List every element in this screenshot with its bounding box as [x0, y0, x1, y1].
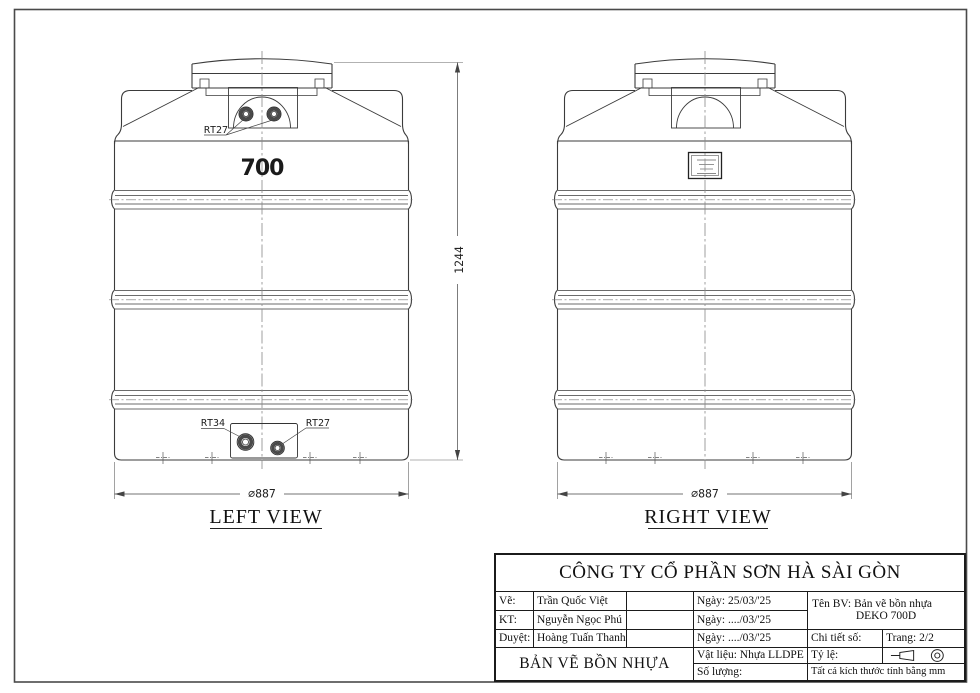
projection-symbols-cell — [883, 648, 964, 664]
scale-label: Tỷ lệ: — [808, 648, 883, 664]
drawing-sheet: RT27 700 RT34 RT27 ∅88 — [0, 0, 980, 693]
drafter-signature-cell — [627, 592, 694, 611]
approver-signature-cell — [627, 630, 694, 649]
projection-method-icon — [886, 648, 961, 663]
dimension-diameter-right: ∅887 — [558, 462, 852, 501]
drawing-name-cell: Tên BV: Bản vẽ bồn nhựa DEKO 700D — [808, 592, 964, 630]
approver-name: Hoàng Tuấn Thanh — [534, 630, 627, 649]
quantity-label: Số lượng: — [694, 664, 808, 680]
dimension-height: 1244 — [334, 63, 466, 461]
diameter-dim-left: ∅887 — [248, 487, 276, 501]
rt34-text: RT34 — [201, 418, 225, 429]
material-label: Vật liệu: Nhựa LLDPE — [694, 648, 808, 664]
drafter-role: Vẽ: — [496, 592, 534, 611]
approver-date: Ngày: ..../03/'25 — [694, 630, 808, 649]
left-view-title: LEFT VIEW — [209, 506, 322, 528]
checker-signature-cell — [627, 611, 694, 630]
right-view-caption: RIGHT VIEW — [644, 506, 772, 529]
units-note: Tất cả kích thước tính bằng mm — [808, 664, 964, 680]
checker-name: Nguyễn Ngọc Phú — [534, 611, 627, 630]
rt27-bottom-text: RT27 — [306, 418, 330, 429]
dimension-diameter-left: ∅887 — [115, 462, 409, 501]
capacity-marking: 700 — [241, 156, 285, 181]
left-view-drawing: RT27 700 RT34 RT27 ∅88 — [109, 51, 414, 529]
height-dim-text: 1244 — [452, 246, 466, 274]
rt27-top-text: RT27 — [204, 125, 228, 136]
label-rt34-bottom: RT34 — [201, 418, 240, 437]
drawing-name: Tên BV: Bản vẽ bồn nhựa — [811, 598, 961, 610]
page-number: Trang: 2/2 — [883, 630, 964, 649]
sheet-title: BẢN VẼ BỒN NHỰA — [496, 648, 694, 680]
drafter-date: Ngày: 25/03/'25 — [694, 592, 808, 611]
company-name: CÔNG TY CỔ PHẦN SƠN HÀ SÀI GÒN — [496, 555, 964, 592]
checker-role: KT: — [496, 611, 534, 630]
tank-outline-right — [552, 51, 857, 469]
approver-role: Duyệt: — [496, 630, 534, 649]
left-view-caption: LEFT VIEW — [209, 506, 322, 529]
checker-date: Ngày: ..../03/'25 — [694, 611, 808, 630]
drafter-name: Trần Quốc Việt — [534, 592, 627, 611]
tank-outline-left — [109, 51, 414, 469]
right-view-drawing: ∅887 RIGHT VIEW — [552, 51, 857, 529]
diameter-dim-right: ∅887 — [691, 487, 719, 501]
title-block: CÔNG TY CỔ PHẦN SƠN HÀ SÀI GÒN Vẽ: Trần … — [494, 553, 966, 682]
right-view-title: RIGHT VIEW — [644, 506, 772, 528]
label-rt27-bottom: RT27 — [283, 418, 330, 444]
top-fittings-left-view — [239, 107, 281, 121]
drawing-model: DEKO 700D — [811, 610, 961, 622]
detail-number-label: Chi tiết số: — [808, 630, 883, 649]
